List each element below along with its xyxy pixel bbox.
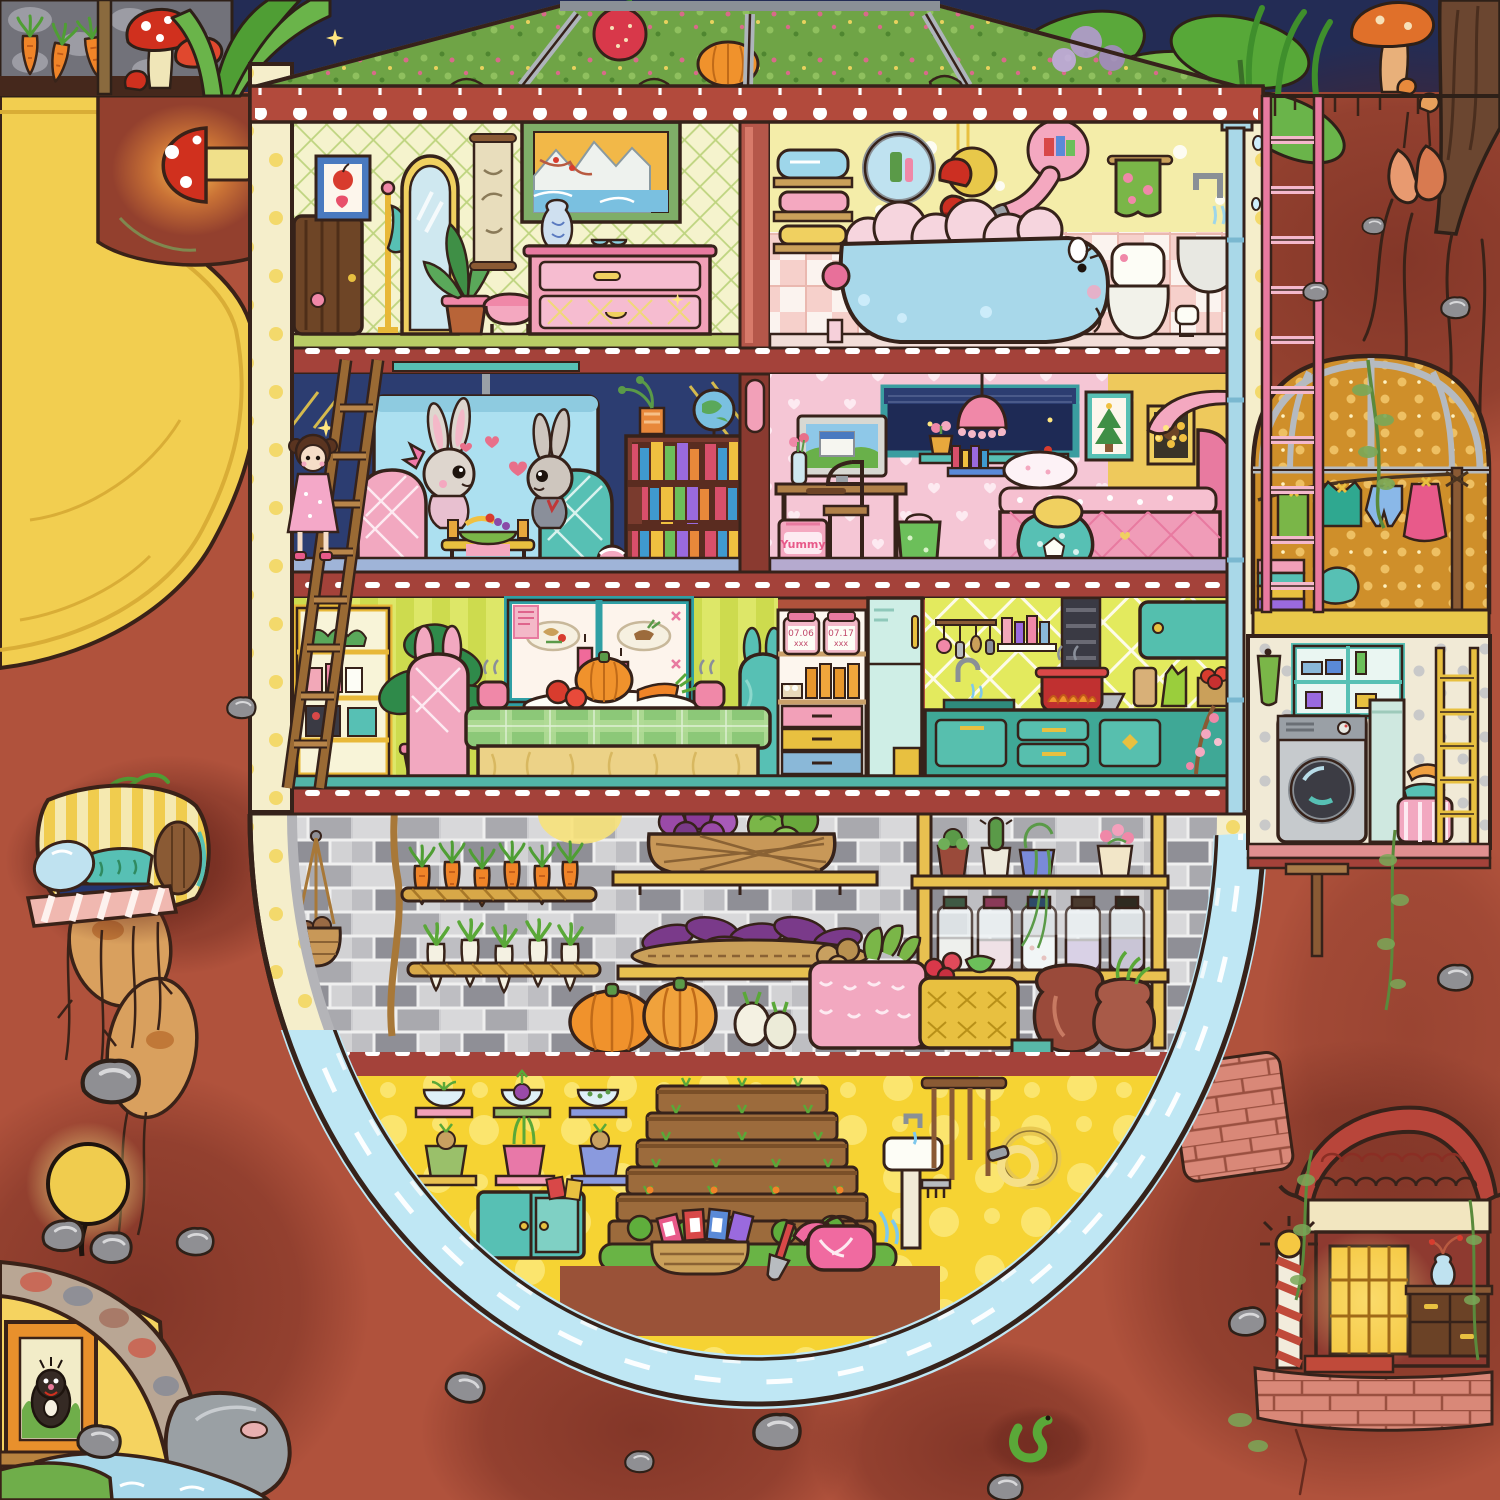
egg-tray bbox=[782, 684, 802, 698]
seed-packet-basket bbox=[652, 1209, 753, 1274]
illustration-stage: Yummy bbox=[0, 0, 1500, 1500]
wall-bookshelf bbox=[948, 468, 1004, 476]
date-jar: 07.06 xxx bbox=[784, 612, 819, 654]
pink-dress bbox=[1404, 484, 1446, 541]
globe-lamp bbox=[26, 1122, 150, 1263]
shrine-fascia bbox=[1308, 1200, 1490, 1232]
blue-vase bbox=[542, 200, 572, 246]
jar-date-label: 07.17 bbox=[828, 629, 854, 639]
jar-date-label: 07.06 bbox=[788, 629, 814, 639]
daikon-rack bbox=[408, 920, 600, 992]
base-cabinets bbox=[925, 706, 1243, 776]
eave-band bbox=[250, 86, 1263, 122]
bottle-shelf bbox=[998, 616, 1056, 651]
brick-ledge bbox=[1255, 1368, 1492, 1430]
house-left-wall bbox=[250, 64, 292, 812]
mushroom-lamp-burrow bbox=[98, 95, 268, 265]
round-wood-door bbox=[155, 822, 201, 894]
wood-pole bbox=[1452, 468, 1462, 612]
pillow bbox=[1004, 452, 1076, 488]
dining-room bbox=[292, 598, 786, 788]
living-floor bbox=[292, 558, 740, 572]
toilet bbox=[1108, 244, 1168, 338]
bathroom bbox=[770, 87, 1243, 348]
yellow-ladder bbox=[1436, 648, 1478, 844]
hanging-scroll bbox=[470, 134, 516, 270]
dressing-floor bbox=[292, 334, 740, 348]
towel-hook bbox=[1258, 649, 1280, 706]
washing-machine bbox=[1278, 716, 1366, 842]
main-house: Yummy bbox=[250, 2, 1263, 814]
plaid-tablecloth bbox=[466, 708, 770, 748]
tub-eye bbox=[1069, 238, 1087, 262]
red-mat bbox=[1305, 1356, 1393, 1372]
pantry: 07.06 xxx 07.17 xxx bbox=[778, 598, 922, 778]
pink-potato-basket bbox=[810, 926, 926, 1048]
wood-door bbox=[294, 216, 362, 334]
wall-cabinet bbox=[1140, 602, 1240, 658]
glass-cup bbox=[828, 320, 842, 342]
cutting-board bbox=[1134, 668, 1156, 706]
drying-dome bbox=[1253, 356, 1489, 636]
lemon-cushion bbox=[1034, 497, 1082, 527]
floor3-floor bbox=[292, 776, 1243, 788]
bath-pouf bbox=[823, 263, 849, 289]
yellow-bin bbox=[894, 748, 920, 778]
laundry-floor bbox=[1248, 844, 1490, 858]
jar-note-label: xxx bbox=[794, 639, 808, 648]
pantry-shelf: 07.06 xxx 07.17 xxx bbox=[778, 610, 866, 776]
towel-shelves bbox=[774, 150, 852, 253]
date-jar: 07.17 xxx bbox=[824, 612, 859, 654]
pink-dress bbox=[288, 474, 338, 532]
ceiling-beam bbox=[393, 362, 579, 371]
burrow-house-illustration: Yummy bbox=[0, 0, 1500, 1500]
christmas-picture bbox=[1086, 392, 1132, 460]
apple-picture bbox=[316, 156, 370, 220]
dressing-room bbox=[292, 122, 740, 348]
soil-floor bbox=[560, 1266, 940, 1336]
wood-post bbox=[98, 0, 111, 94]
jar-note-label: xxx bbox=[834, 639, 848, 648]
dome-floor bbox=[1253, 610, 1489, 636]
green-worm bbox=[982, 1406, 1094, 1478]
green-towel bbox=[1278, 494, 1308, 542]
snack-box-label: Yummy bbox=[779, 538, 825, 551]
bedroom-floor bbox=[770, 558, 1243, 572]
laundry-room bbox=[1248, 636, 1490, 868]
wall-divider bbox=[740, 122, 770, 348]
pink-dresser bbox=[524, 246, 716, 334]
